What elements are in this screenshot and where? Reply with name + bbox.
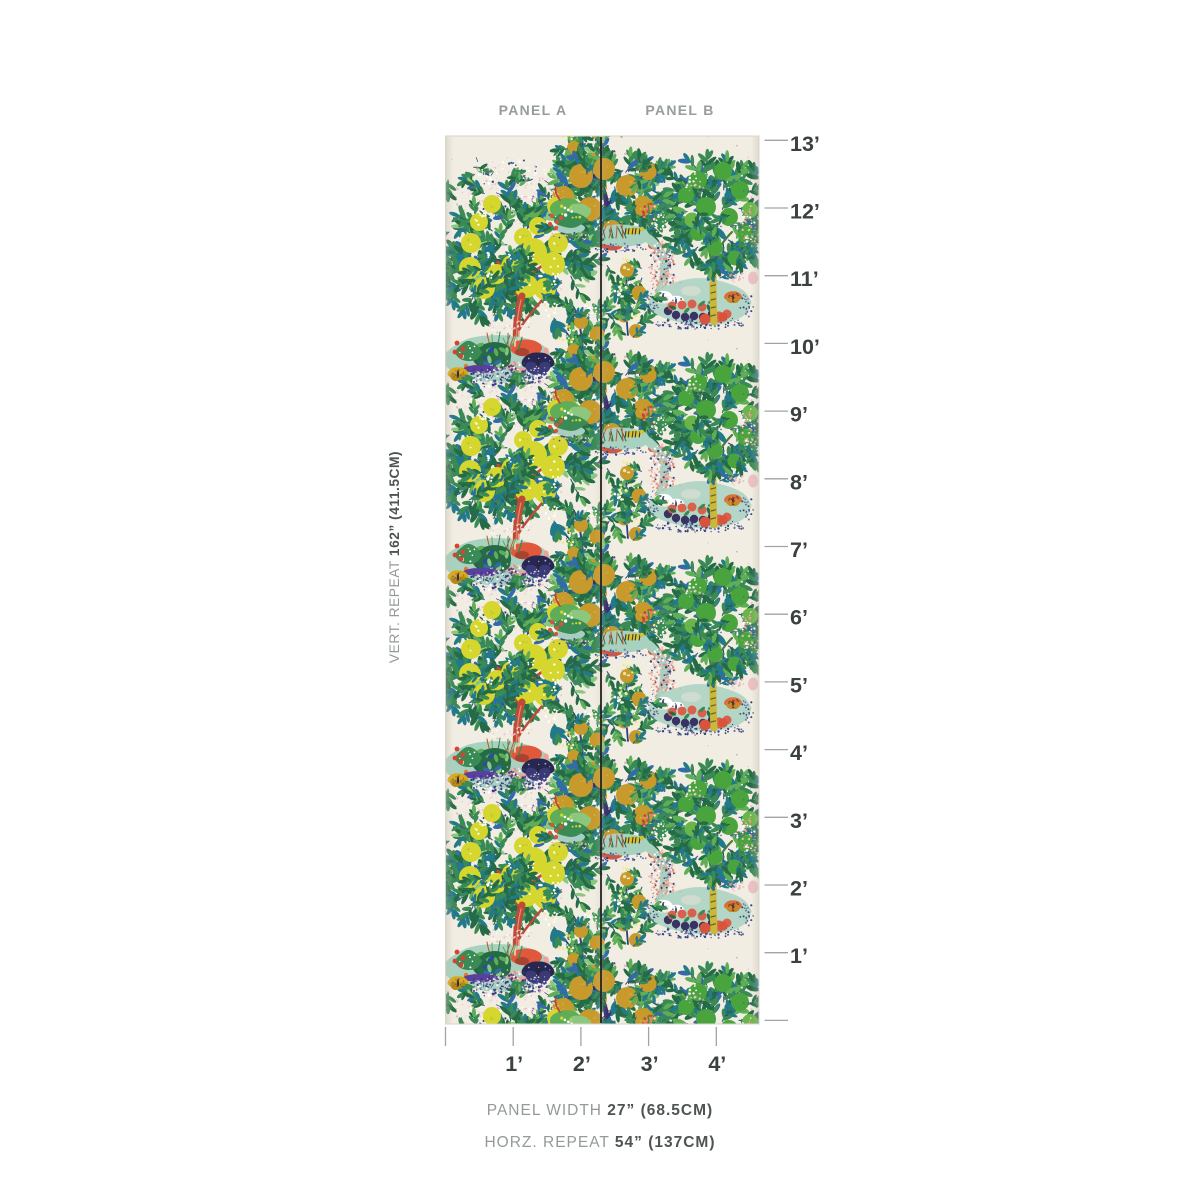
svg-text:PANEL A: PANEL A <box>499 102 568 118</box>
svg-text:11’: 11’ <box>790 267 819 291</box>
svg-text:2’: 2’ <box>573 1052 591 1076</box>
svg-text:2’: 2’ <box>790 877 808 901</box>
svg-text:1’: 1’ <box>790 944 808 968</box>
svg-text:3’: 3’ <box>790 809 808 833</box>
svg-text:PANEL WIDTH 27” (68.5CM): PANEL WIDTH 27” (68.5CM) <box>487 1102 713 1119</box>
svg-text:8’: 8’ <box>790 470 808 494</box>
svg-text:12’: 12’ <box>790 200 820 224</box>
svg-text:1’: 1’ <box>505 1052 523 1076</box>
svg-text:VERT. REPEAT 162” (411.5CM): VERT. REPEAT 162” (411.5CM) <box>387 451 402 663</box>
svg-text:9’: 9’ <box>790 403 808 427</box>
svg-text:13’: 13’ <box>790 132 820 156</box>
svg-text:HORZ. REPEAT 54” (137CM): HORZ. REPEAT 54” (137CM) <box>484 1134 715 1151</box>
svg-text:6’: 6’ <box>790 606 808 630</box>
svg-text:4’: 4’ <box>790 741 808 765</box>
svg-text:5’: 5’ <box>790 673 808 697</box>
svg-text:10’: 10’ <box>790 335 820 359</box>
svg-text:4’: 4’ <box>708 1052 726 1076</box>
svg-text:PANEL B: PANEL B <box>645 102 714 118</box>
svg-text:3’: 3’ <box>641 1052 659 1076</box>
svg-text:7’: 7’ <box>790 538 808 562</box>
